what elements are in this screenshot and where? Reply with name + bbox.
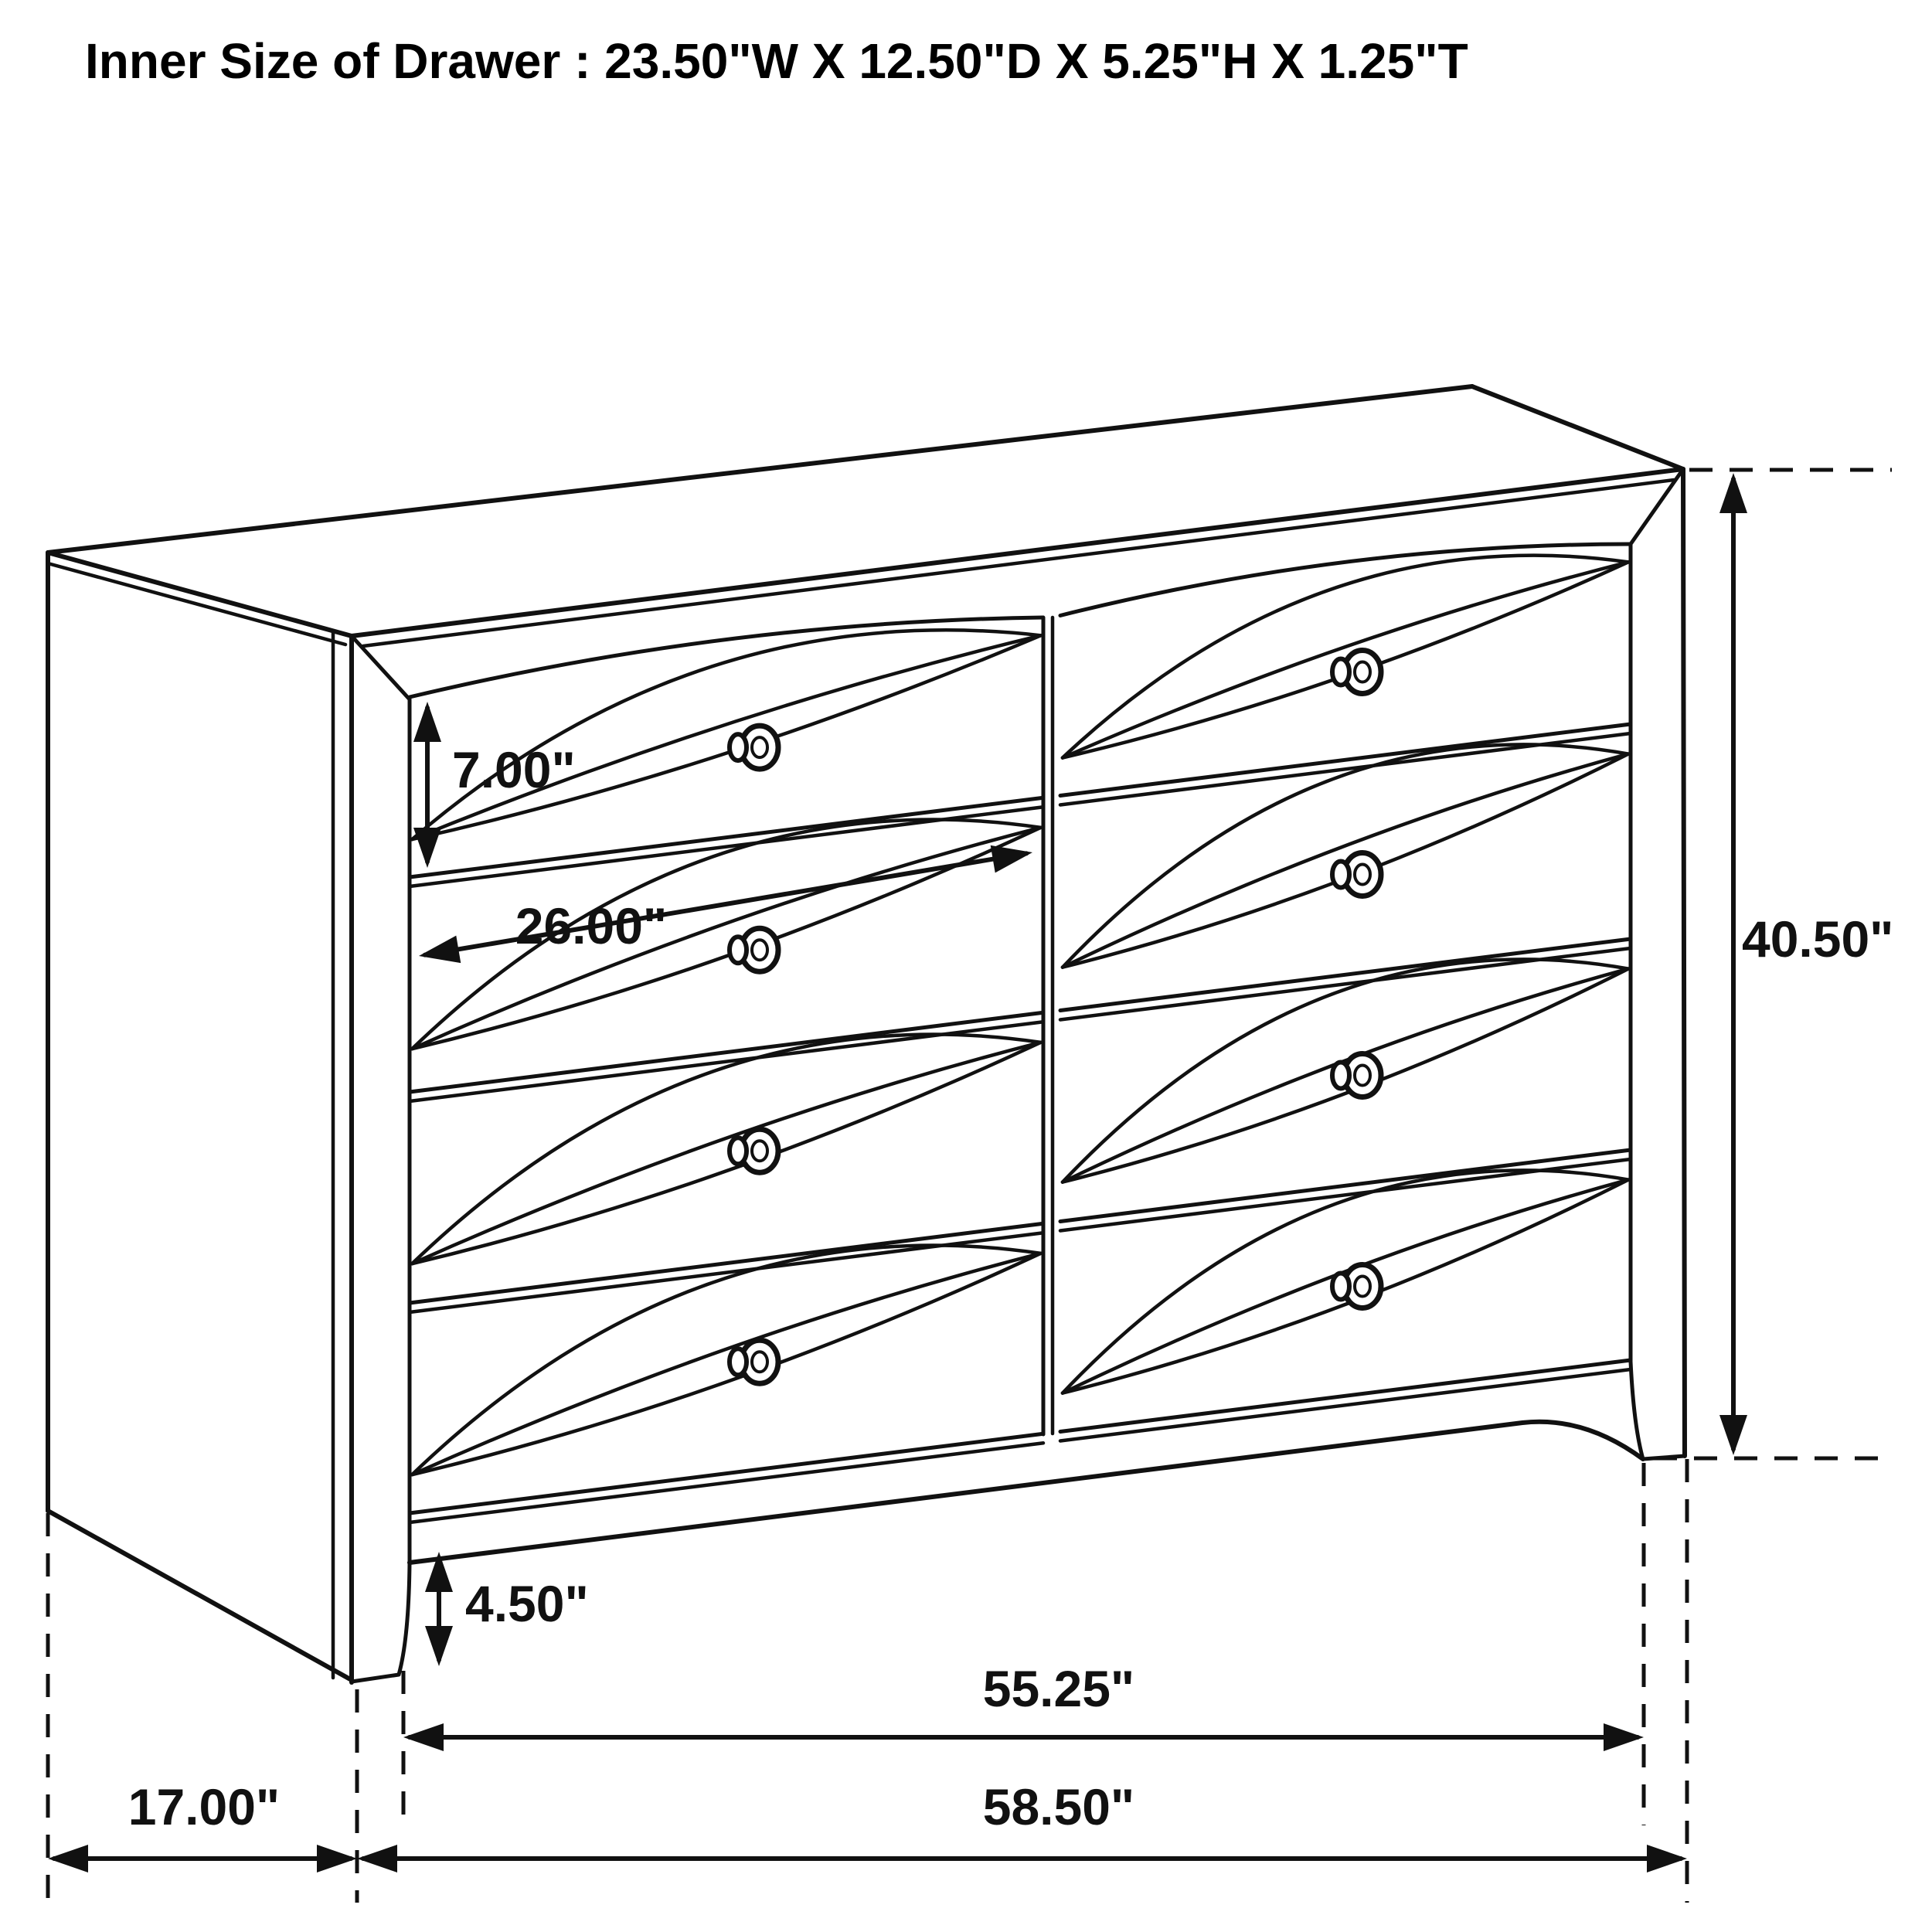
dim-label-overall-height: 40.50": [1742, 913, 1893, 964]
dim-label-drawer-opening-width: 26.00": [464, 900, 719, 951]
dim-label-front-width: 55.25": [904, 1663, 1213, 1714]
diagram-canvas: Inner Size of Drawer : 23.50"W X 12.50"D…: [0, 0, 1932, 1932]
dim-label-drawer-face-height: 7.00": [452, 744, 576, 795]
dim-label-foot-height: 4.50": [465, 1578, 589, 1629]
dresser-line-drawing: [0, 0, 1932, 1932]
dim-label-overall-width: 58.50": [904, 1781, 1213, 1832]
dim-label-side-depth: 17.00": [49, 1781, 359, 1832]
